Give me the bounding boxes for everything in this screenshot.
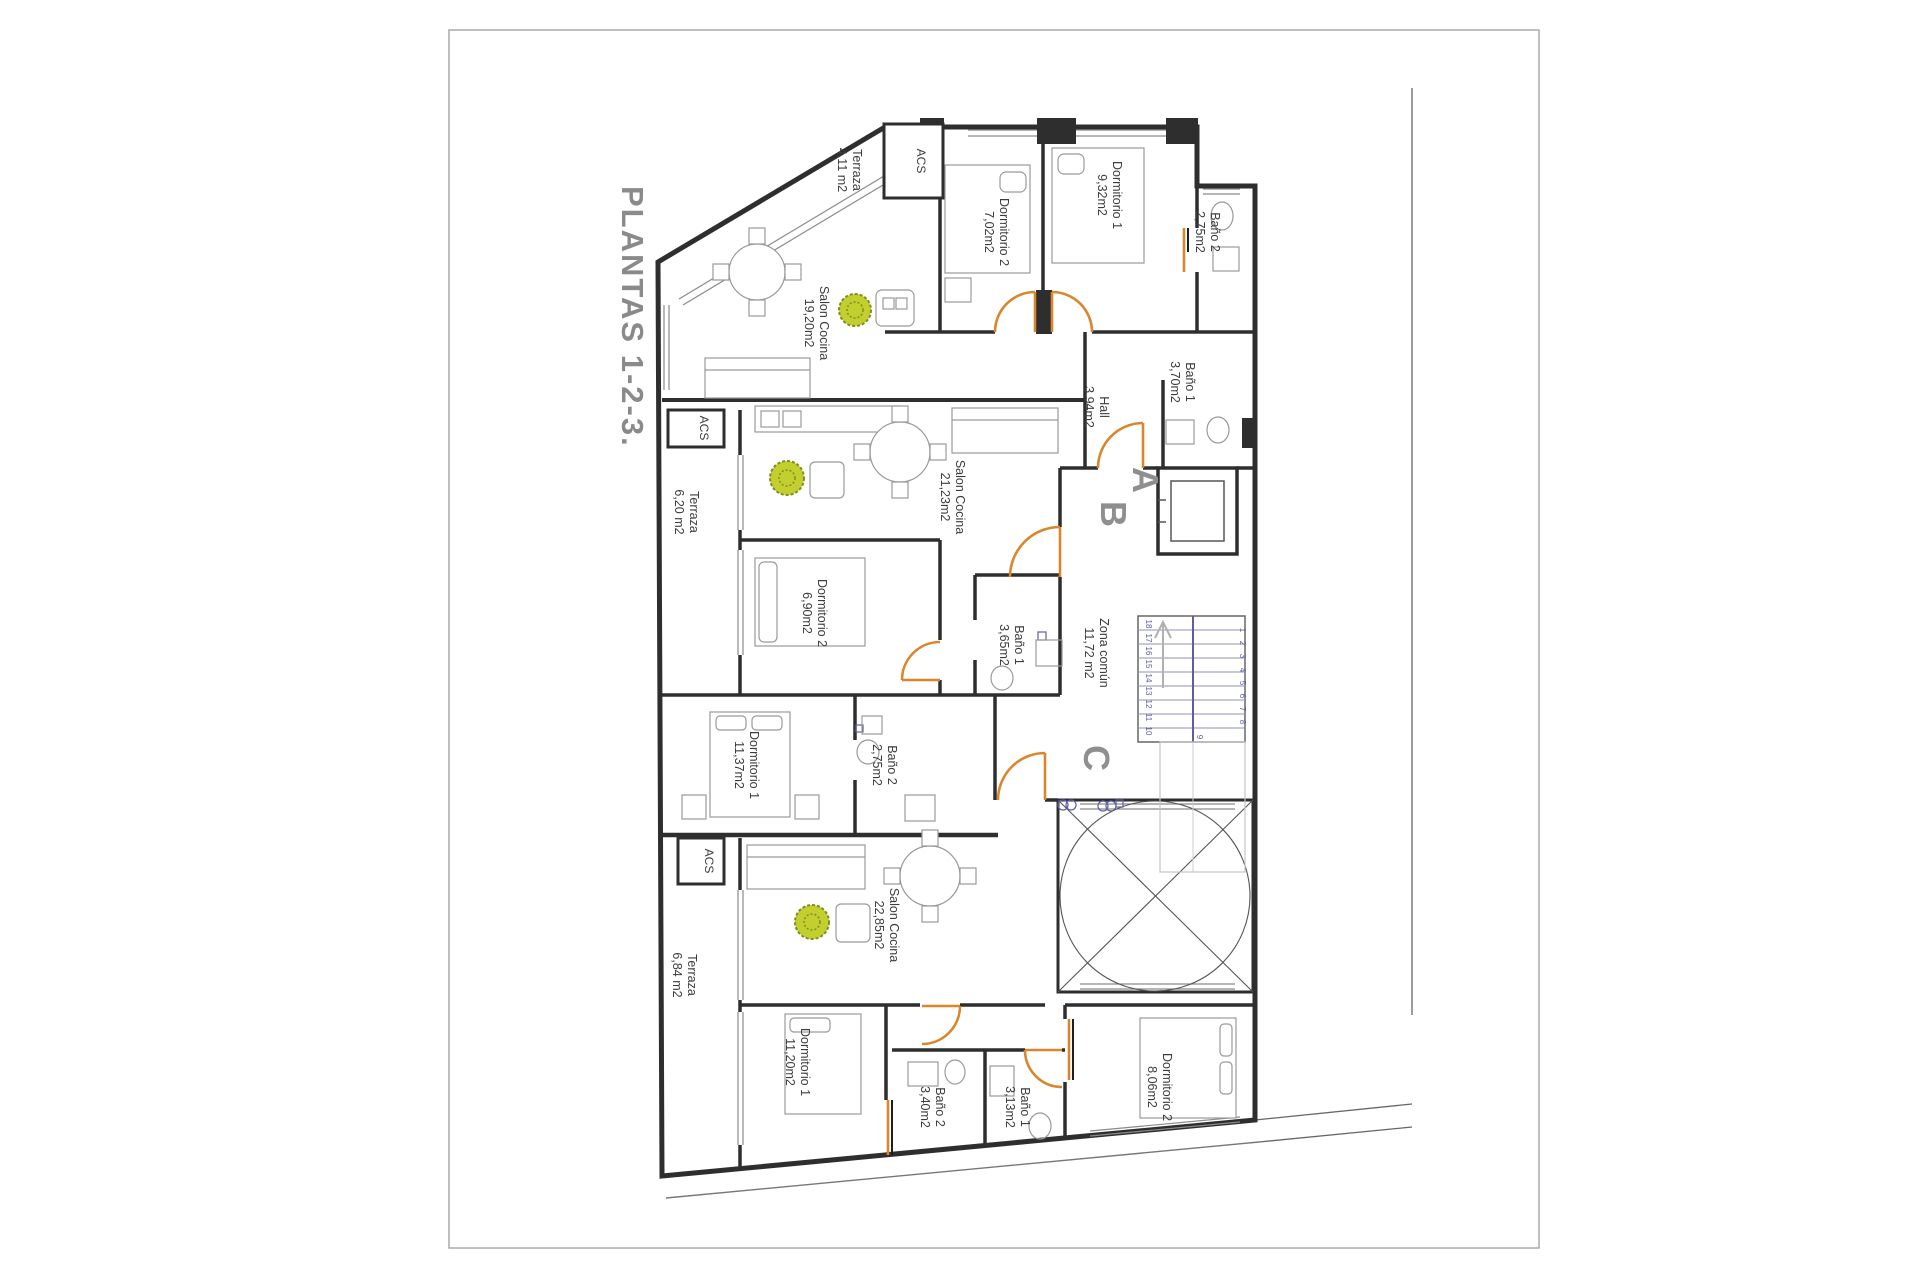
svg-text:4: 4 xyxy=(1238,668,1247,673)
room-name: Baño 1 xyxy=(1018,1087,1032,1127)
room-label-bano1-mid: Baño 1 3,65m2 xyxy=(997,624,1026,666)
room-area: 3,94m2 xyxy=(1082,386,1096,428)
room-name: Baño 2 xyxy=(933,1087,947,1127)
kitchen-island xyxy=(876,290,914,326)
room-label-terraza-bot: Terraza 6,84 m2 xyxy=(670,952,699,997)
svg-text:7: 7 xyxy=(1238,707,1247,712)
room-name: Dormitorio 1 xyxy=(747,731,761,799)
room-name: Baño 1 xyxy=(1183,362,1197,402)
room-name: Baño 2 xyxy=(885,745,899,785)
svg-text:6: 6 xyxy=(1238,694,1247,699)
room-name: Dormitorio 2 xyxy=(997,198,1011,266)
svg-text:3: 3 xyxy=(1238,654,1247,659)
room-name: Dormitorio 2 xyxy=(815,579,829,647)
room-label-bano2-mid: Baño 2 2,75m2 xyxy=(870,744,899,786)
room-area: 11,37m2 xyxy=(732,741,746,789)
room-label-bano2-top: Baño 2 2,75m2 xyxy=(1193,211,1222,253)
room-name: Salon Cocina xyxy=(953,460,967,534)
stair-flight xyxy=(1138,616,1245,742)
room-name: Salon Cocina xyxy=(887,888,901,962)
room-area: 9,32m2 xyxy=(1095,174,1109,216)
acs-label: ACS xyxy=(697,416,711,441)
kitchen-island xyxy=(810,462,844,498)
acs-closet xyxy=(678,838,724,884)
apartment-letter-c: C xyxy=(1076,745,1117,771)
room-area: 2,75m2 xyxy=(870,744,884,786)
room-area: 11,72 m2 xyxy=(1082,627,1096,678)
svg-text:14: 14 xyxy=(1144,674,1153,683)
plant-icon xyxy=(795,905,829,939)
floor-plan-svg: PLANTAS 1-2-3. xyxy=(0,0,1920,1280)
room-area: 22,85m2 xyxy=(872,901,886,950)
room-area: 19,20m2 xyxy=(802,299,816,348)
kitchen-island xyxy=(836,904,870,942)
svg-text:18: 18 xyxy=(1144,620,1153,629)
acs-closet xyxy=(668,410,724,447)
room-area: 6,20 m2 xyxy=(672,489,686,534)
room-area: 2,75m2 xyxy=(1193,211,1207,253)
svg-text:1: 1 xyxy=(1238,628,1247,633)
room-name: Terraza xyxy=(685,954,699,996)
room-label-bano1-bot: Baño 1 3,13m2 xyxy=(1003,1086,1032,1128)
room-area: 3,65m2 xyxy=(997,624,1011,666)
room-area: 11,20m2 xyxy=(783,1038,797,1086)
svg-text:17: 17 xyxy=(1144,634,1153,643)
room-name: Dormitorio 2 xyxy=(1160,1053,1174,1121)
svg-text:2: 2 xyxy=(1238,641,1247,646)
apartment-letter-b: B xyxy=(1093,501,1134,527)
wall-stub xyxy=(1242,418,1256,448)
sofa xyxy=(747,845,865,889)
room-area: 8,06m2 xyxy=(1145,1066,1159,1108)
svg-text:12: 12 xyxy=(1144,700,1153,709)
room-label-terraza-mid: Terraza 6,20 m2 xyxy=(672,489,701,534)
room-name: Baño 1 xyxy=(1012,625,1026,665)
room-area: 6,84 m2 xyxy=(670,952,684,997)
room-name: Hall xyxy=(1097,396,1111,418)
room-area: 3,13m2 xyxy=(1003,1086,1017,1128)
room-area: 4,11 m2 xyxy=(835,148,849,192)
kitchen-counter xyxy=(755,406,900,432)
acs-label: ACS xyxy=(914,149,928,174)
room-label-zona-comun: Zona común 11,72 m2 xyxy=(1082,618,1111,688)
room-area: 7,02m2 xyxy=(982,211,996,253)
plan-title: PLANTAS 1-2-3. xyxy=(615,186,650,448)
plant-icon xyxy=(839,294,871,326)
room-name: Terraza xyxy=(850,149,864,191)
sofa xyxy=(952,408,1058,453)
room-label-bano2-bot: Baño 2 3,40m2 xyxy=(918,1086,947,1128)
svg-text:5: 5 xyxy=(1238,681,1247,686)
room-area: 21,23m2 xyxy=(938,473,952,522)
svg-text:10: 10 xyxy=(1144,727,1153,736)
sofa xyxy=(705,358,810,398)
acs-closet xyxy=(884,124,943,198)
room-label-terraza-top: Terraza 4,11 m2 xyxy=(835,148,864,192)
svg-text:15: 15 xyxy=(1144,660,1153,669)
room-name: Dormitorio 1 xyxy=(798,1028,812,1096)
svg-text:9: 9 xyxy=(1195,735,1204,740)
apartment-letter-a: A xyxy=(1125,467,1166,493)
plant-icon xyxy=(770,461,804,495)
svg-text:8: 8 xyxy=(1238,720,1247,725)
room-name: Zona común xyxy=(1097,618,1111,688)
acs-label: ACS xyxy=(702,849,716,874)
svg-text:16: 16 xyxy=(1144,647,1153,656)
svg-text:13: 13 xyxy=(1144,687,1153,696)
room-area: 6,90m2 xyxy=(800,592,814,634)
room-name: Dormitorio 1 xyxy=(1110,161,1124,229)
room-name: Baño 2 xyxy=(1208,212,1222,252)
room-name: Salon Cocina xyxy=(817,286,831,360)
door-stub xyxy=(1036,290,1052,334)
room-area: 3,40m2 xyxy=(918,1086,932,1128)
svg-text:11: 11 xyxy=(1144,713,1153,722)
wall-stub xyxy=(1166,118,1198,144)
room-area: 3,70m2 xyxy=(1168,361,1182,403)
room-label-bano1-top: Baño 1 3,70m2 xyxy=(1168,361,1197,403)
wall-stub xyxy=(1037,118,1076,144)
room-name: Terraza xyxy=(687,491,701,533)
